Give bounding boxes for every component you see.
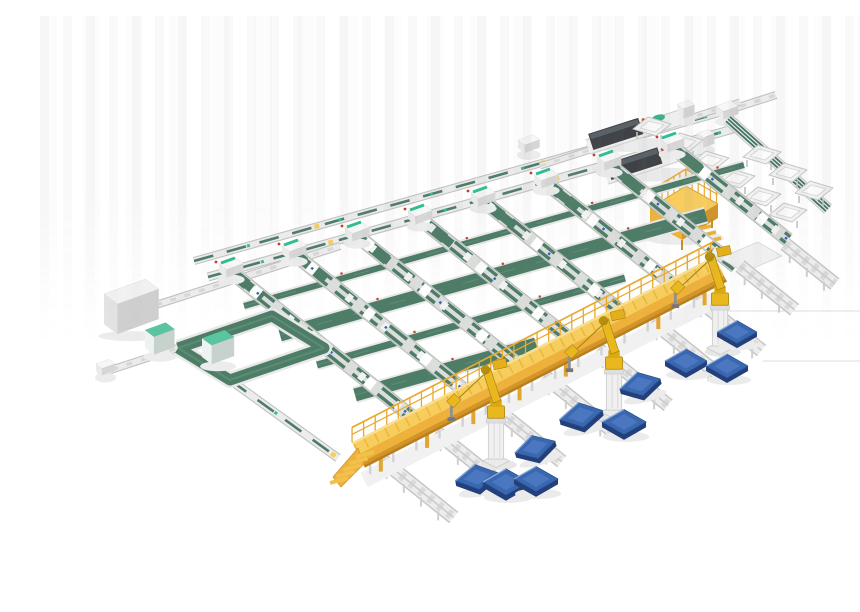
recirculation-loop (178, 316, 324, 380)
loop-to-walkway-conveyor (228, 377, 341, 461)
blue-pallet (514, 466, 561, 499)
factory-line-render (40, 16, 860, 596)
roller-bed (781, 239, 839, 291)
white-module-box (95, 359, 116, 382)
white-module-box (517, 135, 541, 160)
roller-bed (736, 261, 799, 315)
blue-pallet (706, 354, 751, 385)
isometric-scene (40, 16, 860, 596)
teal-machine (143, 323, 176, 362)
conveyor-lane (278, 240, 471, 397)
